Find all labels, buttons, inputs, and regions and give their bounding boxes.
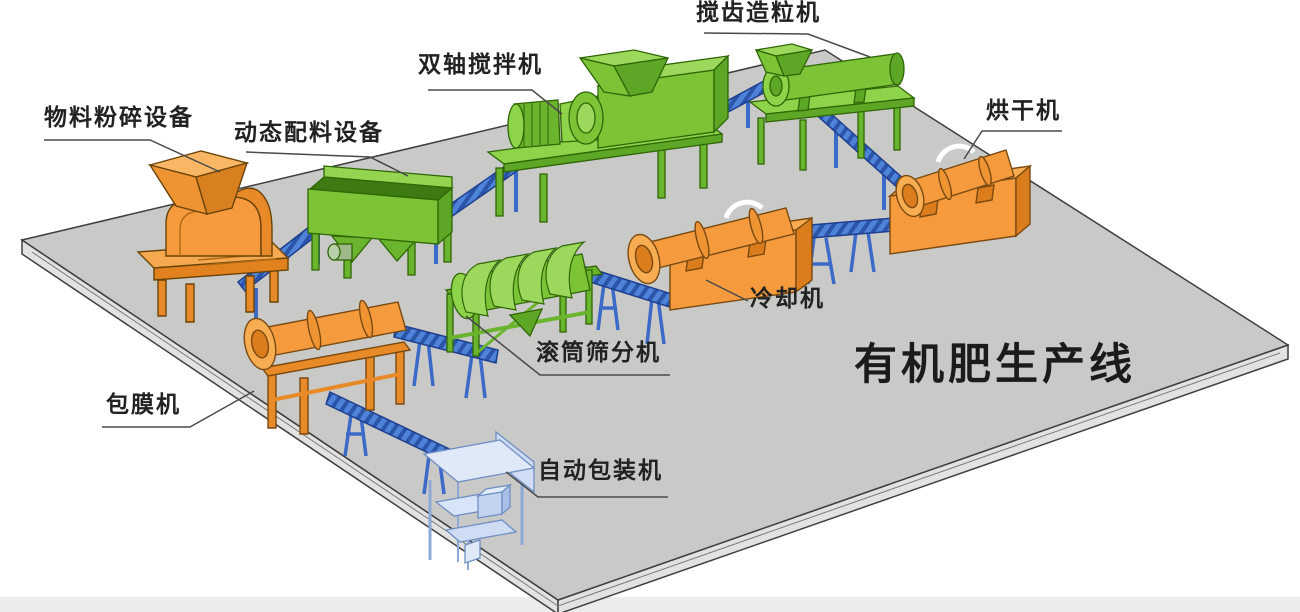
production-line-illustration [0,0,1300,612]
page-title: 有机肥生产线 [854,330,1136,392]
label-dryer: 烘干机 [986,99,1061,124]
bottom-strip [0,597,1300,612]
label-coater: 包膜机 [106,393,181,418]
label-packer: 自动包装机 [538,459,663,484]
label-cooler: 冷却机 [750,287,825,312]
label-granulator: 搅齿造粒机 [696,1,821,26]
illustration-stage: 物料粉碎设备 动态配料设备 双轴搅拌机 搅齿造粒机 烘干机 冷却机 滚筒筛分机 … [0,0,1300,612]
label-batcher: 动态配料设备 [234,121,384,146]
label-screener: 滚筒筛分机 [536,341,661,366]
label-crusher: 物料粉碎设备 [44,106,194,131]
label-mixer: 双轴搅拌机 [418,53,543,78]
